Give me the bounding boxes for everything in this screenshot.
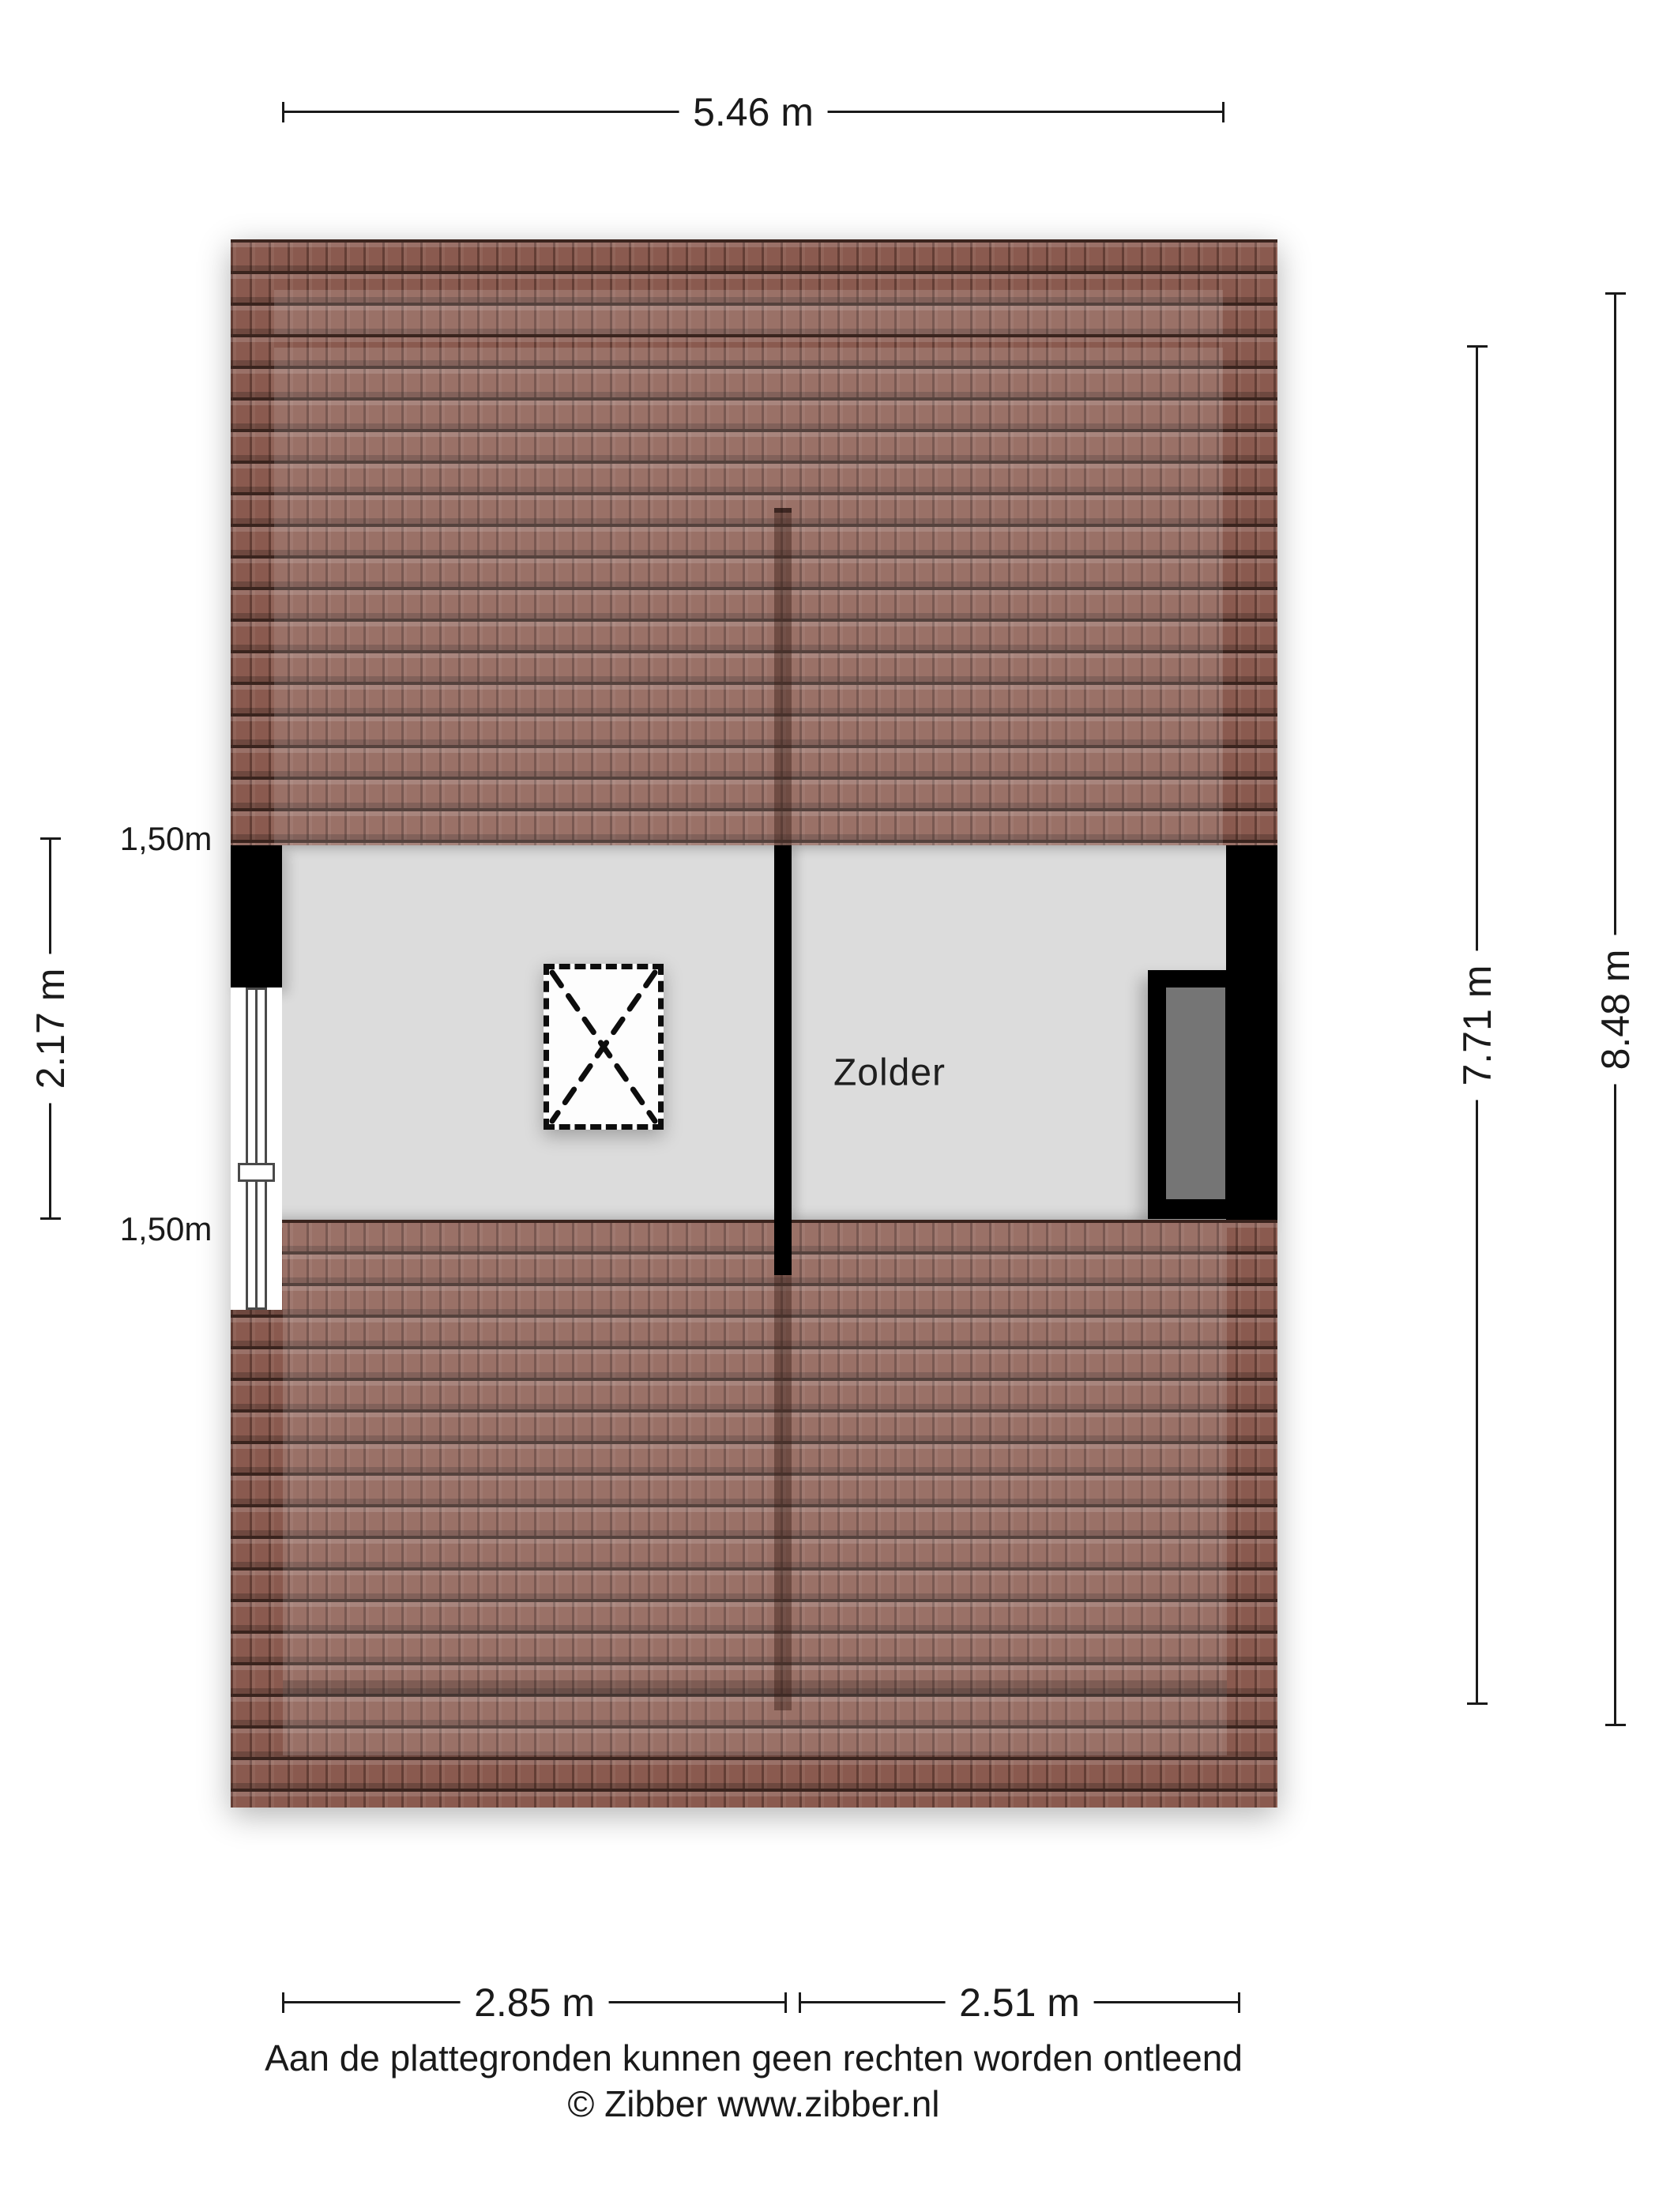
dimension-tick [1467, 345, 1488, 348]
dimension-tick [282, 102, 284, 122]
dimension-label-bottom-left: 2.85 m [460, 1980, 609, 2026]
dimension-tick [1222, 102, 1224, 122]
interior-wall-seam-bottom-roof [774, 1220, 792, 1710]
dimension-tick [1467, 1702, 1488, 1705]
dimension-bottom-left-room: 2.85 m [282, 1992, 787, 2013]
dimension-tick [799, 1992, 801, 2013]
dimension-label-bottom-right: 2.51 m [945, 1980, 1094, 2026]
dimension-tick [40, 1217, 61, 1220]
left-window [231, 987, 282, 1310]
stair-opening-x-icon [549, 969, 658, 1124]
left-window-frame [246, 987, 267, 1310]
dimension-left-height: 2.17 m [40, 837, 61, 1220]
dimension-tick [282, 1992, 284, 2013]
interior-wall-stub [774, 1220, 792, 1275]
attic-floor: Zolder [231, 845, 1277, 1220]
dimension-label-right-inner: 7.71 m [1454, 950, 1500, 1100]
bottom-roof [231, 1220, 1277, 1808]
dimension-tick [1605, 1724, 1626, 1726]
interior-dividing-wall [774, 845, 792, 1220]
dimension-label-right-outer: 8.48 m [1593, 935, 1638, 1084]
floorplan-page: Zolder 5.46 m 2.85 m 2.51 m [0, 0, 1659, 2212]
left-exterior-wall [231, 845, 282, 987]
dimension-total-width: 5.46 m [282, 102, 1224, 122]
dimension-right-outer-height: 8.48 m [1605, 292, 1626, 1726]
floor-plan: Zolder [231, 239, 1277, 1808]
dormer-window-glass [1166, 987, 1225, 1199]
top-roof-highlight-main [274, 348, 1223, 845]
footer-disclaimer: Aan de plattegronden kunnen geen rechten… [265, 2035, 1243, 2081]
room-label: Zolder [833, 1051, 946, 1095]
dimension-right-inner-height: 7.71 m [1467, 345, 1488, 1705]
bottom-roof-shadow-band [283, 1680, 1227, 1696]
dormer-window [1148, 970, 1277, 1219]
dimension-bottom-right-room: 2.51 m [799, 1992, 1240, 2013]
knee-height-label-bottom: 1,50m [120, 1210, 213, 1248]
dimension-tick [1238, 1992, 1240, 2013]
interior-wall-seam-top-roof [774, 508, 792, 845]
dimension-label-left-height: 2.17 m [28, 954, 73, 1104]
top-roof [231, 239, 1277, 845]
footer: Aan de plattegronden kunnen geen rechten… [265, 2035, 1243, 2127]
footer-copyright: © Zibber www.zibber.nl [265, 2081, 1243, 2127]
dimension-tick [784, 1992, 787, 2013]
stair-opening [544, 964, 664, 1130]
bottom-roof-highlight-main [283, 1228, 1227, 1755]
dimension-label-total-width: 5.46 m [679, 89, 828, 135]
left-window-glass-line [255, 990, 258, 1307]
dimension-tick [40, 837, 61, 840]
dimension-tick [1605, 292, 1626, 295]
left-window-sash [238, 1163, 275, 1182]
knee-height-label-top: 1,50m [120, 820, 213, 858]
top-roof-highlight-band [274, 290, 1223, 334]
